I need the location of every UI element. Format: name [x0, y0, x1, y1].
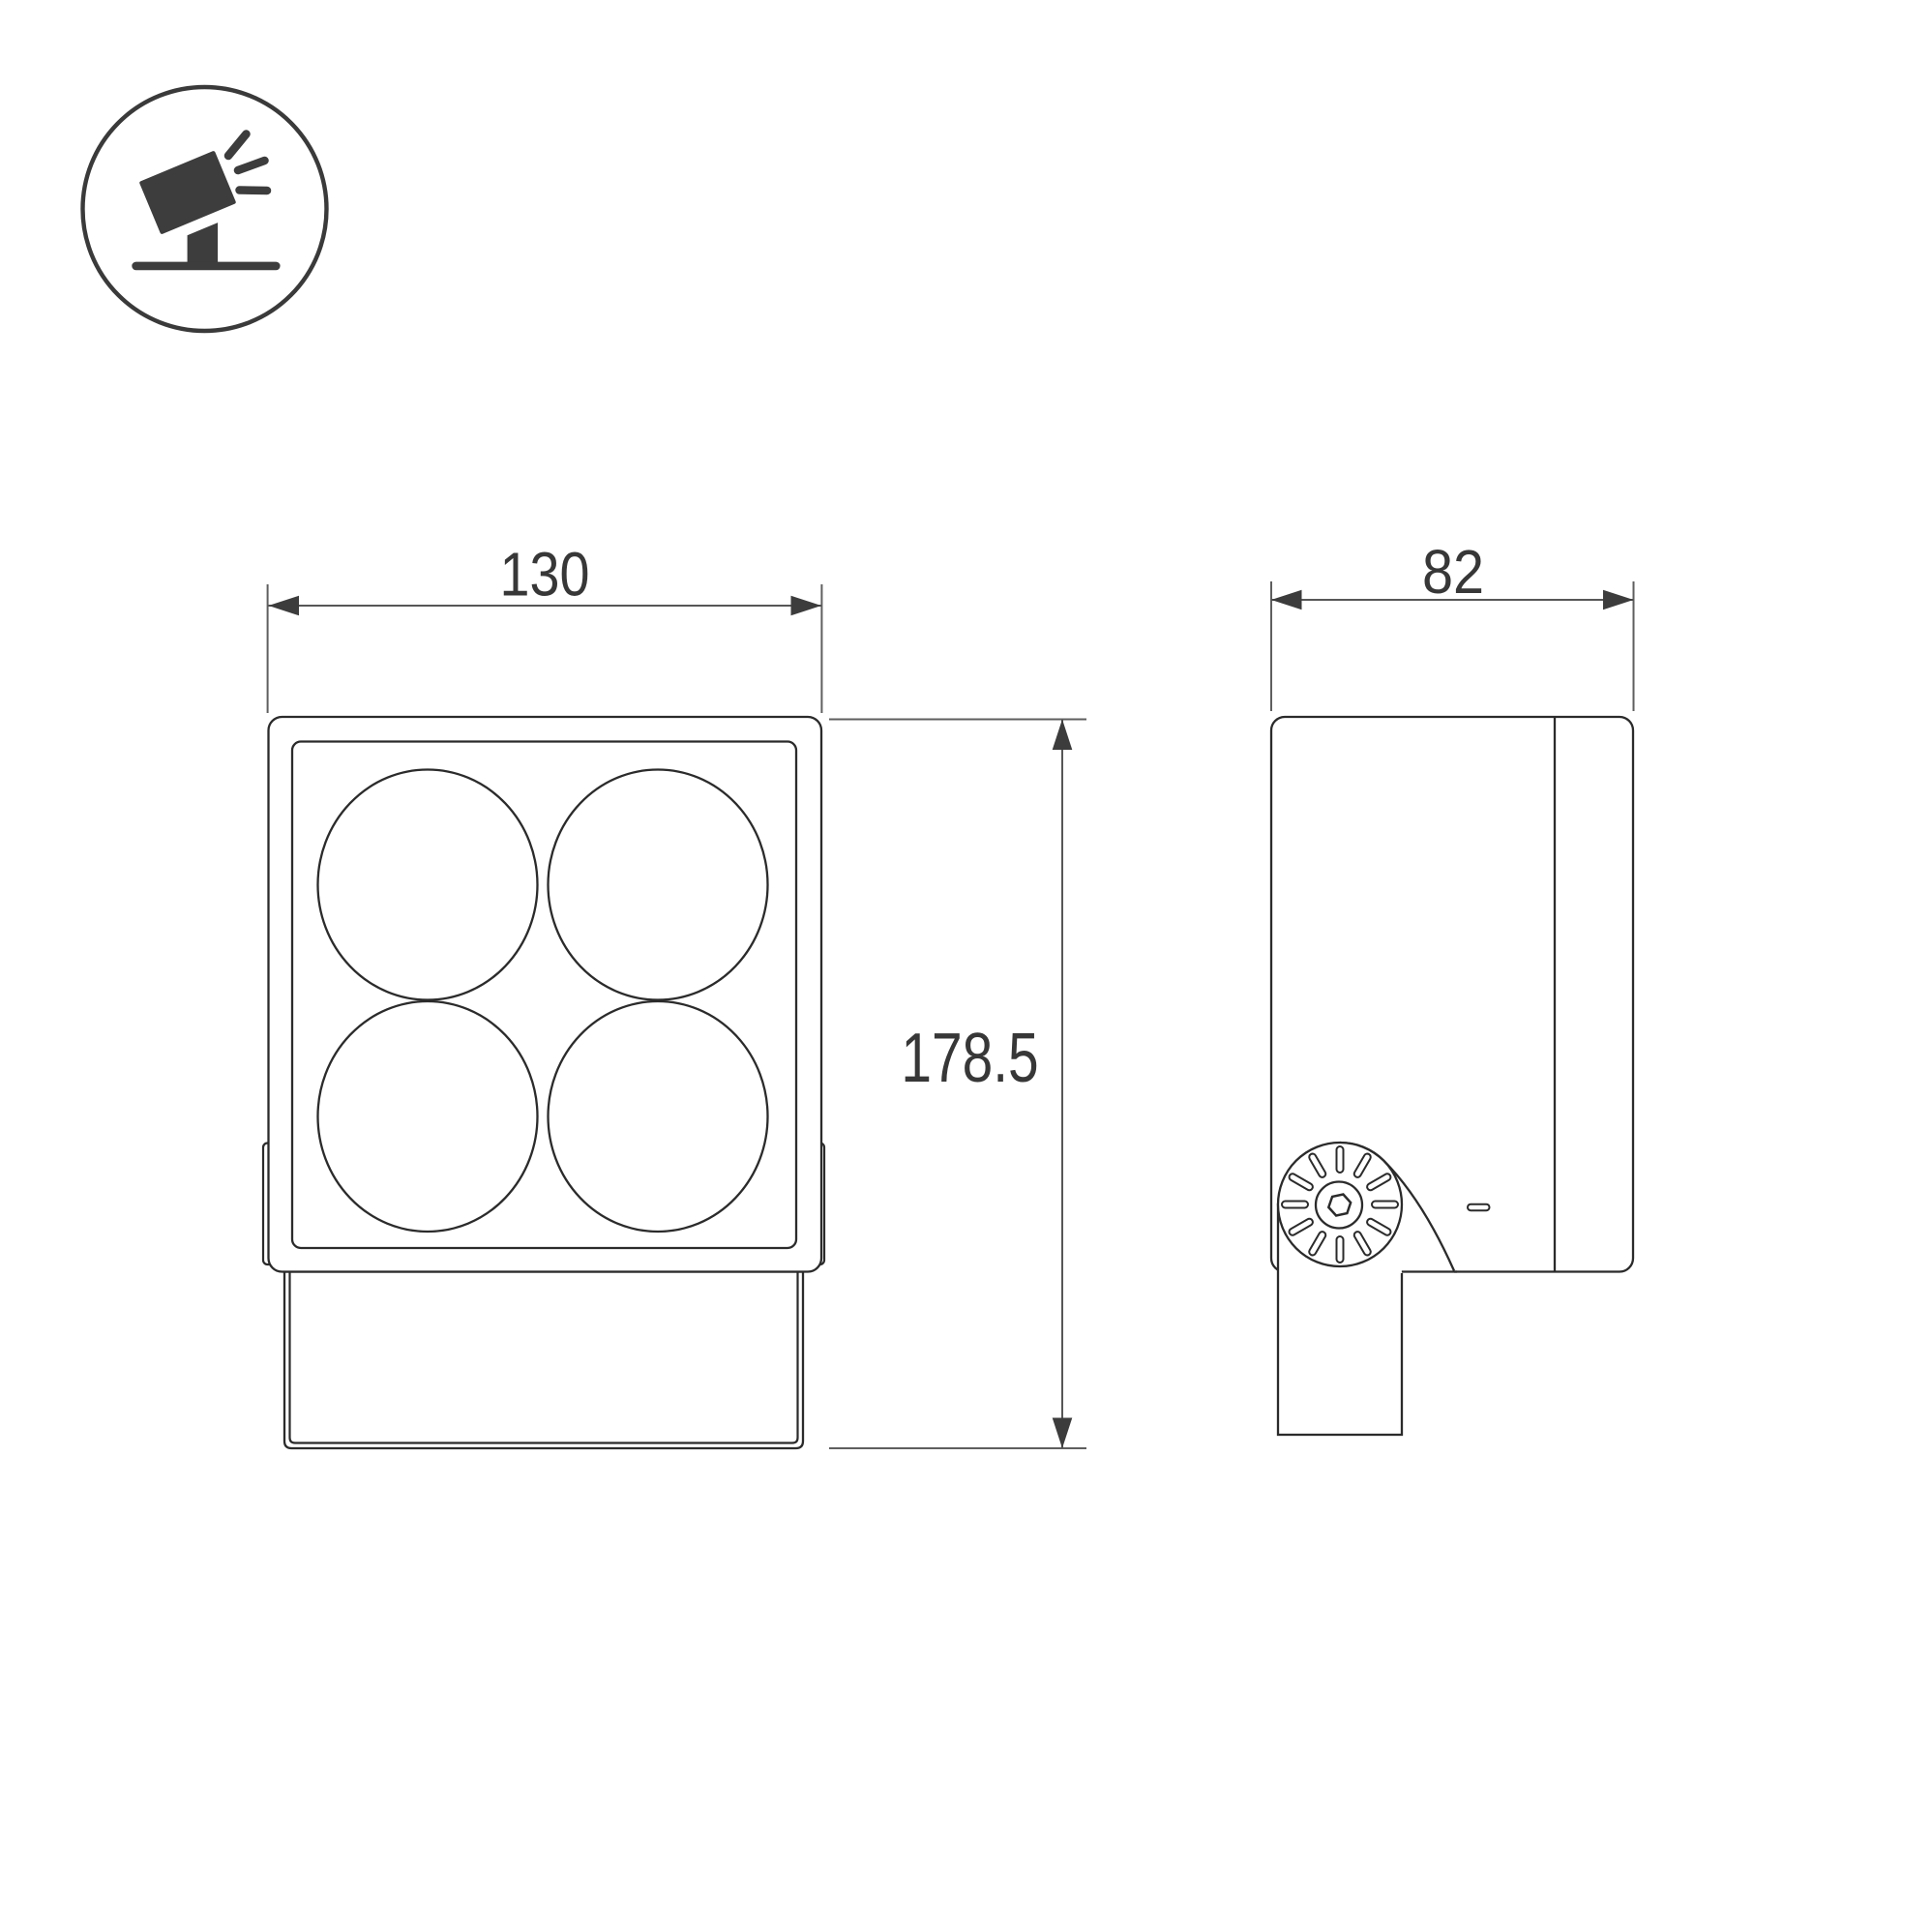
- svg-text:82: 82: [1422, 537, 1484, 606]
- svg-text:130: 130: [500, 540, 590, 609]
- svg-text:178.5: 178.5: [901, 1019, 1038, 1097]
